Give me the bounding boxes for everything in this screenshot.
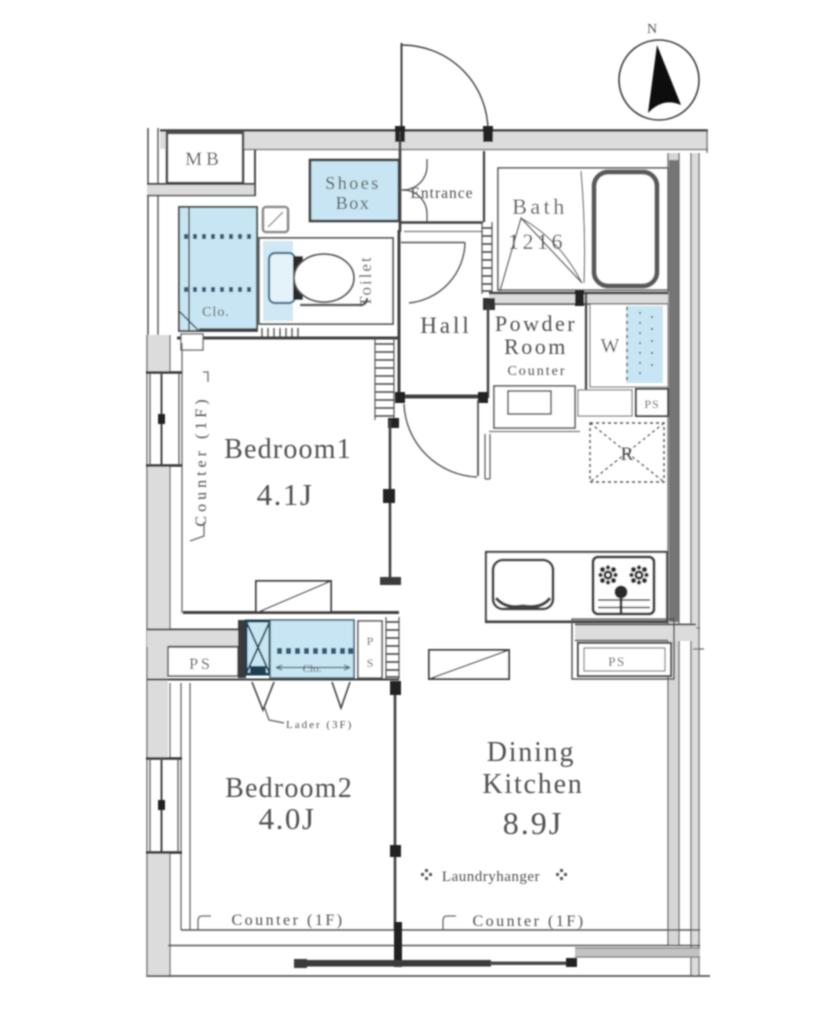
svg-text:Hall: Hall bbox=[420, 313, 472, 338]
svg-text:Clo.: Clo. bbox=[202, 305, 230, 320]
svg-text:Room: Room bbox=[504, 334, 568, 359]
svg-text:Toilet: Toilet bbox=[356, 255, 375, 306]
svg-text:PS: PS bbox=[608, 654, 625, 669]
svg-text:Bedroom2: Bedroom2 bbox=[225, 773, 353, 804]
svg-text:PS: PS bbox=[644, 397, 659, 411]
svg-text:Clo.: Clo. bbox=[303, 663, 322, 675]
svg-text:P: P bbox=[367, 634, 374, 648]
svg-text:8.9J: 8.9J bbox=[503, 805, 563, 841]
svg-text:W: W bbox=[601, 335, 620, 357]
svg-text:Counter: Counter bbox=[507, 364, 566, 379]
svg-text:Powder: Powder bbox=[495, 311, 577, 336]
svg-text:R: R bbox=[621, 444, 634, 465]
svg-text:Counter (1F): Counter (1F) bbox=[472, 913, 585, 930]
svg-text:Counter (1F): Counter (1F) bbox=[193, 395, 210, 526]
svg-text:Lader (3F): Lader (3F) bbox=[286, 719, 353, 731]
svg-text:Bedroom1: Bedroom1 bbox=[224, 434, 352, 465]
svg-text:MB: MB bbox=[185, 149, 223, 170]
svg-text:Counter (1F): Counter (1F) bbox=[231, 912, 344, 929]
svg-text:Laundryhanger: Laundryhanger bbox=[442, 869, 540, 885]
svg-text:N: N bbox=[647, 22, 657, 37]
svg-text:Box: Box bbox=[336, 193, 371, 213]
svg-text:4.0J: 4.0J bbox=[259, 801, 316, 836]
svg-text:Entrance: Entrance bbox=[410, 185, 473, 202]
svg-text:S: S bbox=[367, 656, 374, 670]
svg-text:4.1J: 4.1J bbox=[257, 477, 314, 512]
svg-text:Dining: Dining bbox=[487, 737, 576, 768]
svg-text:Kitchen: Kitchen bbox=[482, 769, 583, 800]
svg-text:Shoes: Shoes bbox=[325, 173, 381, 193]
svg-text:PS: PS bbox=[189, 656, 213, 673]
svg-text:Bath: Bath bbox=[512, 194, 568, 219]
